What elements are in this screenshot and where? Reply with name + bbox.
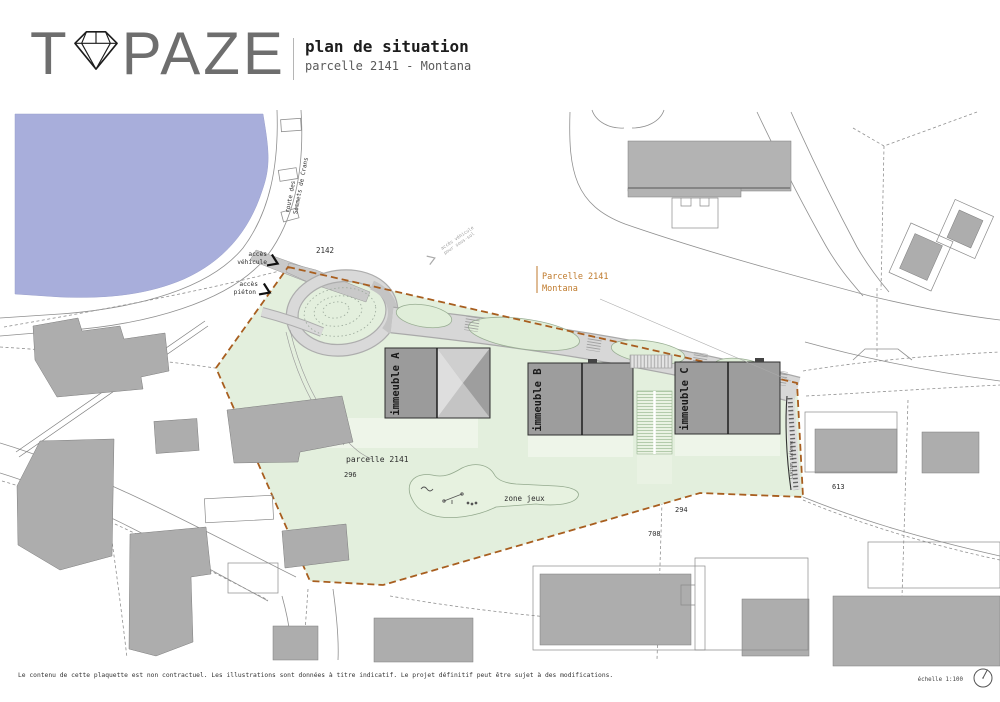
immeuble-a-label: immeuble A [390,352,402,416]
access-vehicle-label-2: véhicule [237,258,267,266]
parcel-number-2142: 2142 [316,246,334,255]
parcel-callout-line2: Montana [542,284,578,294]
immeuble-c-label: immeuble C [679,367,691,430]
terrace-c [675,434,780,456]
parcel-number-613: 613 [832,483,845,491]
disclaimer-text: Le contenu de cette plaquette est non co… [18,672,613,679]
parcel-number-296: 296 [344,471,357,479]
plan-de-situation-page: T PAZE plan de situation parcelle 2141 -… [0,0,1000,702]
access-vehicle-label-1: accès [248,250,267,258]
parcel-label: parcelle 2141 [346,455,409,464]
terrace-b [528,435,633,457]
pedestrian-link-label: liaison piétonne [789,440,794,479]
lake [15,114,268,297]
playground-label: zone jeux [504,494,545,503]
north-arrow-icon [974,669,992,687]
basement-access-arrow-icon [427,254,437,265]
scale-label: échelle 1:100 [918,676,964,683]
immeuble-b-label: immeuble B [532,368,544,431]
parcel-number-708: 708 [648,530,661,538]
access-pedestrian-label-2: piéton [234,288,257,296]
parcel-callout-line1: Parcelle 2141 [542,272,609,282]
access-pedestrian-label-1: accès [239,280,258,288]
site-plan-map: route des Sommets de Crans accès véhicul… [0,0,1000,702]
parcel-number-294: 294 [675,506,688,514]
